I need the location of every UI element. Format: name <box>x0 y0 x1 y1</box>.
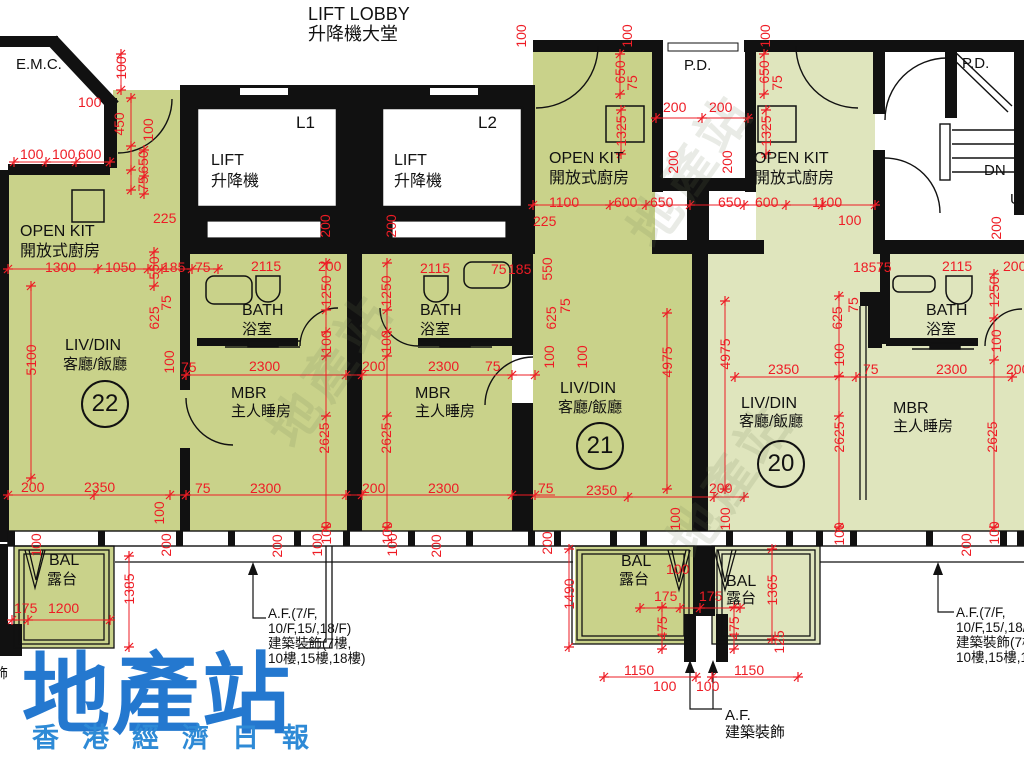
dim-1325: 1325 <box>759 115 773 146</box>
dim-200: 200 <box>362 481 385 495</box>
bal-20-en: BAL <box>726 574 756 590</box>
dim-550: 550 <box>147 256 161 279</box>
bal-21-zh: 露台 <box>619 572 649 587</box>
dim-225: 225 <box>153 211 176 225</box>
dim-2300: 2300 <box>428 359 459 373</box>
dim-2300: 2300 <box>250 481 281 495</box>
dim-200: 200 <box>384 214 398 237</box>
mbr-21-en: MBR <box>415 386 451 402</box>
lift1-id: L1 <box>296 114 315 131</box>
dim-100: 100 <box>319 330 333 353</box>
dim-2625: 2625 <box>379 422 393 453</box>
dim-175: 175 <box>654 589 677 603</box>
openkit-22-zh: 開放式廚房 <box>20 244 100 260</box>
dim-75: 75 <box>538 481 554 495</box>
dim-1200: 1200 <box>48 601 79 615</box>
mbr-21-zh: 主人睡房 <box>415 404 475 419</box>
dim-100: 100 <box>52 147 75 161</box>
dim-1150: 1150 <box>624 663 654 677</box>
bath-20-zh: 浴室 <box>926 322 956 337</box>
page-title-en: LIFT LOBBY <box>308 5 410 23</box>
pd-right: P.D. <box>962 56 989 71</box>
af-bottom-2: 建築裝飾 <box>725 725 785 740</box>
dim-625: 625 <box>544 306 558 329</box>
dim-1050: 1050 <box>105 260 136 274</box>
dim-1250: 1250 <box>379 275 393 306</box>
dim-2300: 2300 <box>936 362 967 376</box>
dim-475: 475 <box>727 616 741 639</box>
dim-600: 600 <box>614 195 637 209</box>
dim-75: 75 <box>195 481 211 495</box>
dim-200: 200 <box>720 150 734 173</box>
dim-2115: 2115 <box>420 261 450 275</box>
dim-100: 100 <box>141 118 155 141</box>
bal-22-en: BAL <box>49 553 79 569</box>
pd-vent <box>668 43 738 51</box>
openkit-22-en: OPEN KIT <box>20 224 95 240</box>
dim-75: 75 <box>485 359 501 373</box>
livdin-21-zh: 客廳/飯廳 <box>558 400 622 415</box>
dim-200: 200 <box>270 534 284 557</box>
dim-650: 650 <box>650 195 673 209</box>
openkit-21-en: OPEN KIT <box>549 151 624 167</box>
dim-2300: 2300 <box>249 359 280 373</box>
bal-21-en: BAL <box>621 554 651 570</box>
dim-75: 75 <box>181 360 197 374</box>
dim-75: 75 <box>876 260 892 274</box>
dim-100: 100 <box>838 213 861 227</box>
mbr-22-en: MBR <box>231 386 267 402</box>
dim-200: 200 <box>21 480 44 494</box>
dim-200: 200 <box>159 533 173 556</box>
dim-1100: 1100 <box>549 195 579 209</box>
bath-22-en: BATH <box>242 303 283 319</box>
unit-21-number: 21 <box>576 422 624 470</box>
dim-100: 100 <box>832 343 846 366</box>
page-title-zh: 升降機大堂 <box>308 25 398 43</box>
dim-1325: 1325 <box>614 115 628 146</box>
af-bottom-1: A.F. <box>725 708 751 723</box>
dim-200: 200 <box>709 100 732 114</box>
dim-2350: 2350 <box>768 362 799 376</box>
af-right-2: 10/F,15/,18/F) <box>956 621 1024 635</box>
dim-1150: 1150 <box>734 663 764 677</box>
dim-1250: 1250 <box>987 276 1001 307</box>
dim-75: 75 <box>491 262 507 276</box>
dim-450: 450 <box>112 112 126 135</box>
openkit-20-en: OPEN KIT <box>754 151 829 167</box>
dim-185: 185 <box>162 260 185 274</box>
dim-200: 200 <box>318 259 341 273</box>
dim-2115: 2115 <box>251 259 281 273</box>
unit-20-number: 20 <box>757 440 805 488</box>
dim-75: 75 <box>195 260 211 274</box>
dim-100: 100 <box>718 507 732 530</box>
dim-100: 100 <box>78 95 101 109</box>
dim-4975: 4975 <box>718 338 732 369</box>
dim-100: 100 <box>114 56 128 79</box>
dim-100: 100 <box>542 345 556 368</box>
af-right-1: A.F.(7/F, <box>956 606 1006 620</box>
dim-200: 200 <box>362 359 385 373</box>
stair-dn: DN <box>984 163 1006 178</box>
openkit-21-zh: 開放式廚房 <box>549 171 629 187</box>
livdin-22-zh: 客廳/飯廳 <box>63 357 127 372</box>
dim-200: 200 <box>709 481 732 495</box>
dim-100: 100 <box>29 533 43 556</box>
lift2-en: LIFT <box>394 153 427 169</box>
dim-75: 75 <box>159 295 173 311</box>
dim-100: 100 <box>379 330 393 353</box>
dim-2350: 2350 <box>84 480 115 494</box>
bath-21-en: BATH <box>420 303 461 319</box>
dim-2625: 2625 <box>832 421 846 452</box>
dim-100: 100 <box>514 24 528 47</box>
lift1-en: LIFT <box>211 153 244 169</box>
dim-100: 100 <box>668 507 682 530</box>
dim-100: 100 <box>385 533 399 556</box>
livdin-21-en: LIV/DIN <box>560 381 616 397</box>
dim-600: 600 <box>755 195 778 209</box>
dim-100: 100 <box>310 533 324 556</box>
dim-100: 100 <box>989 329 1003 352</box>
bath-20-en: BATH <box>926 303 967 319</box>
dim-2625: 2625 <box>317 422 331 453</box>
mbr-22-zh: 主人睡房 <box>231 404 291 419</box>
dim-100: 100 <box>20 147 43 161</box>
stair-up: UP <box>1010 192 1024 207</box>
dim-1250: 1250 <box>319 275 333 306</box>
dim-100: 100 <box>620 24 634 47</box>
unit-22-number: 22 <box>81 380 129 428</box>
dim-200: 200 <box>318 214 332 237</box>
dim-200: 200 <box>989 216 1003 239</box>
site-watermark-subtitle: 香港經濟日報 <box>32 716 332 755</box>
dim-225: 225 <box>533 214 556 228</box>
dim-175: 175 <box>699 589 722 603</box>
dim-600: 600 <box>78 147 101 161</box>
dim-550: 550 <box>540 257 554 280</box>
livdin-20-zh: 客廳/飯廳 <box>739 414 803 429</box>
dim-1365: 1365 <box>765 574 779 605</box>
dim-2625: 2625 <box>985 421 999 452</box>
lift1-zh: 升降機 <box>211 174 259 190</box>
dim-2350: 2350 <box>586 483 617 497</box>
dim-1385: 1385 <box>122 573 136 604</box>
bath-22-zh: 浴室 <box>242 322 272 337</box>
dim-100: 100 <box>666 562 689 576</box>
dim-100: 100 <box>653 679 676 693</box>
dim-200: 200 <box>429 534 443 557</box>
dim-75: 75 <box>863 362 879 376</box>
lift2-zh: 升降機 <box>394 174 442 190</box>
dim-75: 75 <box>136 176 150 192</box>
dim-2300: 2300 <box>428 481 459 495</box>
dim-4975: 4975 <box>660 346 674 377</box>
dim-100: 100 <box>575 345 589 368</box>
dim-200: 200 <box>1003 259 1024 273</box>
dim-100: 100 <box>832 522 846 545</box>
livdin-22-en: LIV/DIN <box>65 338 121 354</box>
dim-625: 625 <box>830 306 844 329</box>
dim-125: 125 <box>772 630 786 653</box>
bal-20-zh: 露台 <box>726 591 756 606</box>
clipped-char: 飾 <box>0 666 8 680</box>
dim-185: 185 <box>508 262 531 276</box>
dim-200: 200 <box>666 150 680 173</box>
af-left-1: A.F.(7/F, <box>268 607 318 621</box>
af-right-4: 10樓,15樓,18樓) <box>956 651 1024 665</box>
dim-100: 100 <box>162 350 176 373</box>
livdin-20-en: LIV/DIN <box>741 396 797 412</box>
dim-200: 200 <box>1006 362 1024 376</box>
dim-475: 475 <box>655 616 669 639</box>
mbr-20-zh: 主人睡房 <box>893 419 953 434</box>
openkit-20-zh: 開放式廚房 <box>754 171 834 187</box>
dim-75: 75 <box>770 75 784 91</box>
dim-75: 75 <box>558 298 572 314</box>
dim-200: 200 <box>663 100 686 114</box>
dim-1490: 1490 <box>562 578 576 609</box>
bal-22-zh: 露台 <box>47 572 77 587</box>
dim-100: 100 <box>696 679 719 693</box>
dim-100: 100 <box>987 521 1001 544</box>
floorplan-canvas: 地產站 地產站 地產站 LIFT LOBBY 升降機大堂 E.M.C.L1LIF… <box>0 0 1024 768</box>
dim-5100: 5100 <box>24 344 38 375</box>
dim-200: 200 <box>540 531 554 554</box>
mbr-20-en: MBR <box>893 401 929 417</box>
dim-650: 650 <box>136 150 150 173</box>
dim-185: 185 <box>853 260 876 274</box>
dim-100: 100 <box>758 24 772 47</box>
pd-left: P.D. <box>684 58 711 73</box>
dim-75: 75 <box>625 75 639 91</box>
dim-200: 200 <box>959 533 973 556</box>
dim-2115: 2115 <box>942 259 972 273</box>
dim-1100: 1100 <box>812 195 842 209</box>
bath-21-zh: 浴室 <box>420 322 450 337</box>
dim-100: 100 <box>152 501 166 524</box>
af-right-3: 建築裝飾(7樓, <box>956 636 1024 650</box>
lift2-id: L2 <box>478 114 497 131</box>
dim-650: 650 <box>718 195 741 209</box>
dim-75: 75 <box>846 297 860 313</box>
dim-1300: 1300 <box>45 260 76 274</box>
dim-175: 175 <box>14 601 37 615</box>
room-emc: E.M.C. <box>16 57 62 72</box>
